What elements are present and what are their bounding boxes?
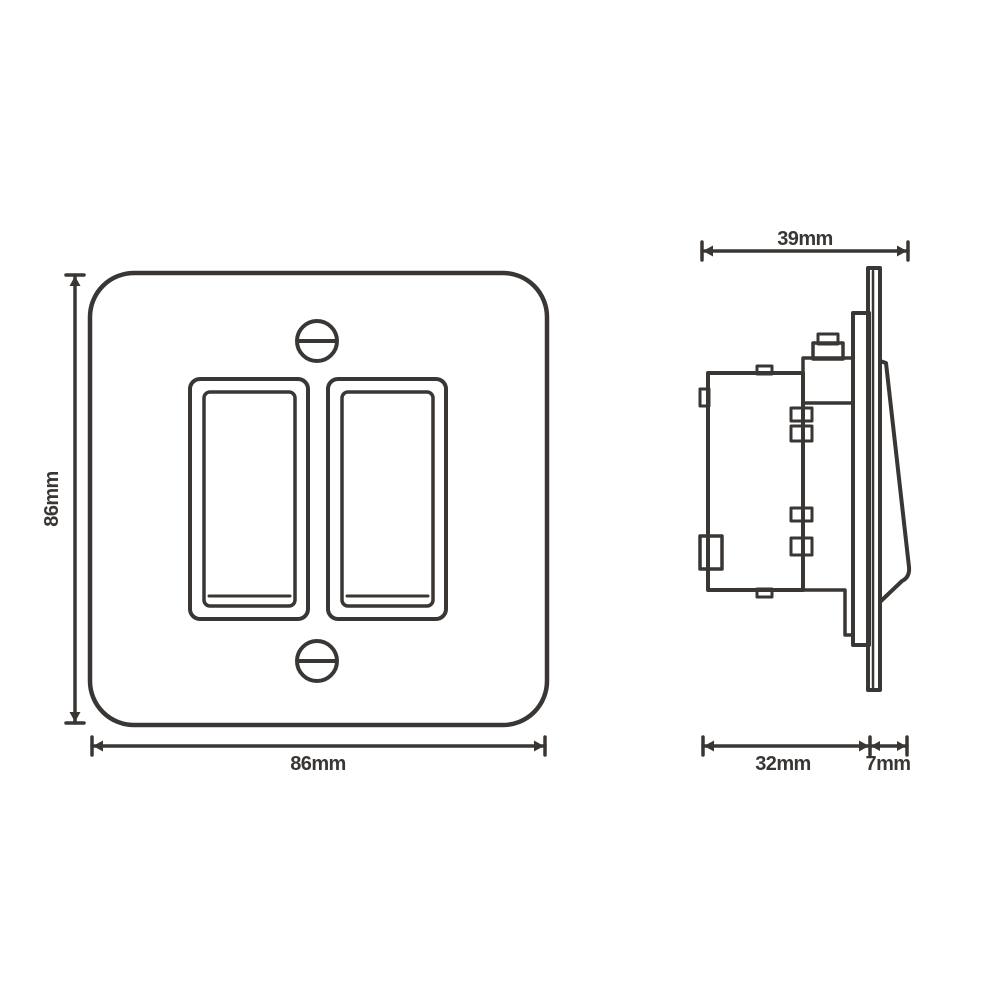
body-depth-dimension: 32mm	[703, 737, 870, 775]
projection-label: 7mm	[866, 753, 911, 775]
front-view	[90, 273, 547, 725]
body-depth-label: 32mm	[755, 753, 810, 775]
width-dimension: 86mm	[92, 737, 545, 775]
height-arrow-up-icon	[70, 276, 81, 286]
width-dimension-label: 86mm	[290, 753, 345, 775]
height-dimension: 86mm	[41, 275, 84, 723]
overall-depth-arrow-right-icon	[897, 246, 907, 257]
right-rocker	[328, 379, 446, 619]
top-screw	[297, 321, 337, 361]
overall-depth-arrow-left-icon	[703, 246, 713, 257]
height-arrow-down-icon	[70, 712, 81, 722]
bottom-screw	[297, 641, 337, 681]
mechanism-bottom-step	[803, 590, 853, 635]
back-box-left-tab	[700, 389, 709, 406]
width-arrow-left-icon	[93, 741, 103, 752]
left-rocker	[190, 379, 308, 619]
projection-dimension: 7mm	[866, 737, 911, 775]
right-rocker-inner	[342, 392, 433, 606]
terminal-block	[803, 334, 853, 635]
projection-arrow-right-icon	[897, 741, 906, 751]
width-arrow-right-icon	[534, 741, 544, 752]
back-box-bottom-lug	[757, 589, 772, 597]
projection-arrow-left-icon	[871, 741, 880, 751]
back-box-left-foot	[700, 536, 722, 569]
rocker-lever-profile	[880, 361, 909, 601]
switch-dimension-diagram: 86mm 86mm	[0, 0, 1000, 1000]
side-view	[700, 268, 909, 690]
technical-drawing: 86mm 86mm	[0, 0, 1000, 1000]
body-depth-arrow-right-icon	[859, 741, 869, 752]
height-dimension-label: 86mm	[41, 471, 63, 526]
left-rocker-inner	[204, 392, 295, 606]
back-box-top-lug	[757, 366, 772, 374]
overall-depth-label: 39mm	[777, 228, 832, 250]
terminal-body	[803, 358, 853, 403]
right-rocker-outer	[328, 379, 446, 619]
body-depth-arrow-left-icon	[704, 741, 714, 752]
overall-depth-dimension: 39mm	[702, 228, 908, 260]
left-rocker-outer	[190, 379, 308, 619]
